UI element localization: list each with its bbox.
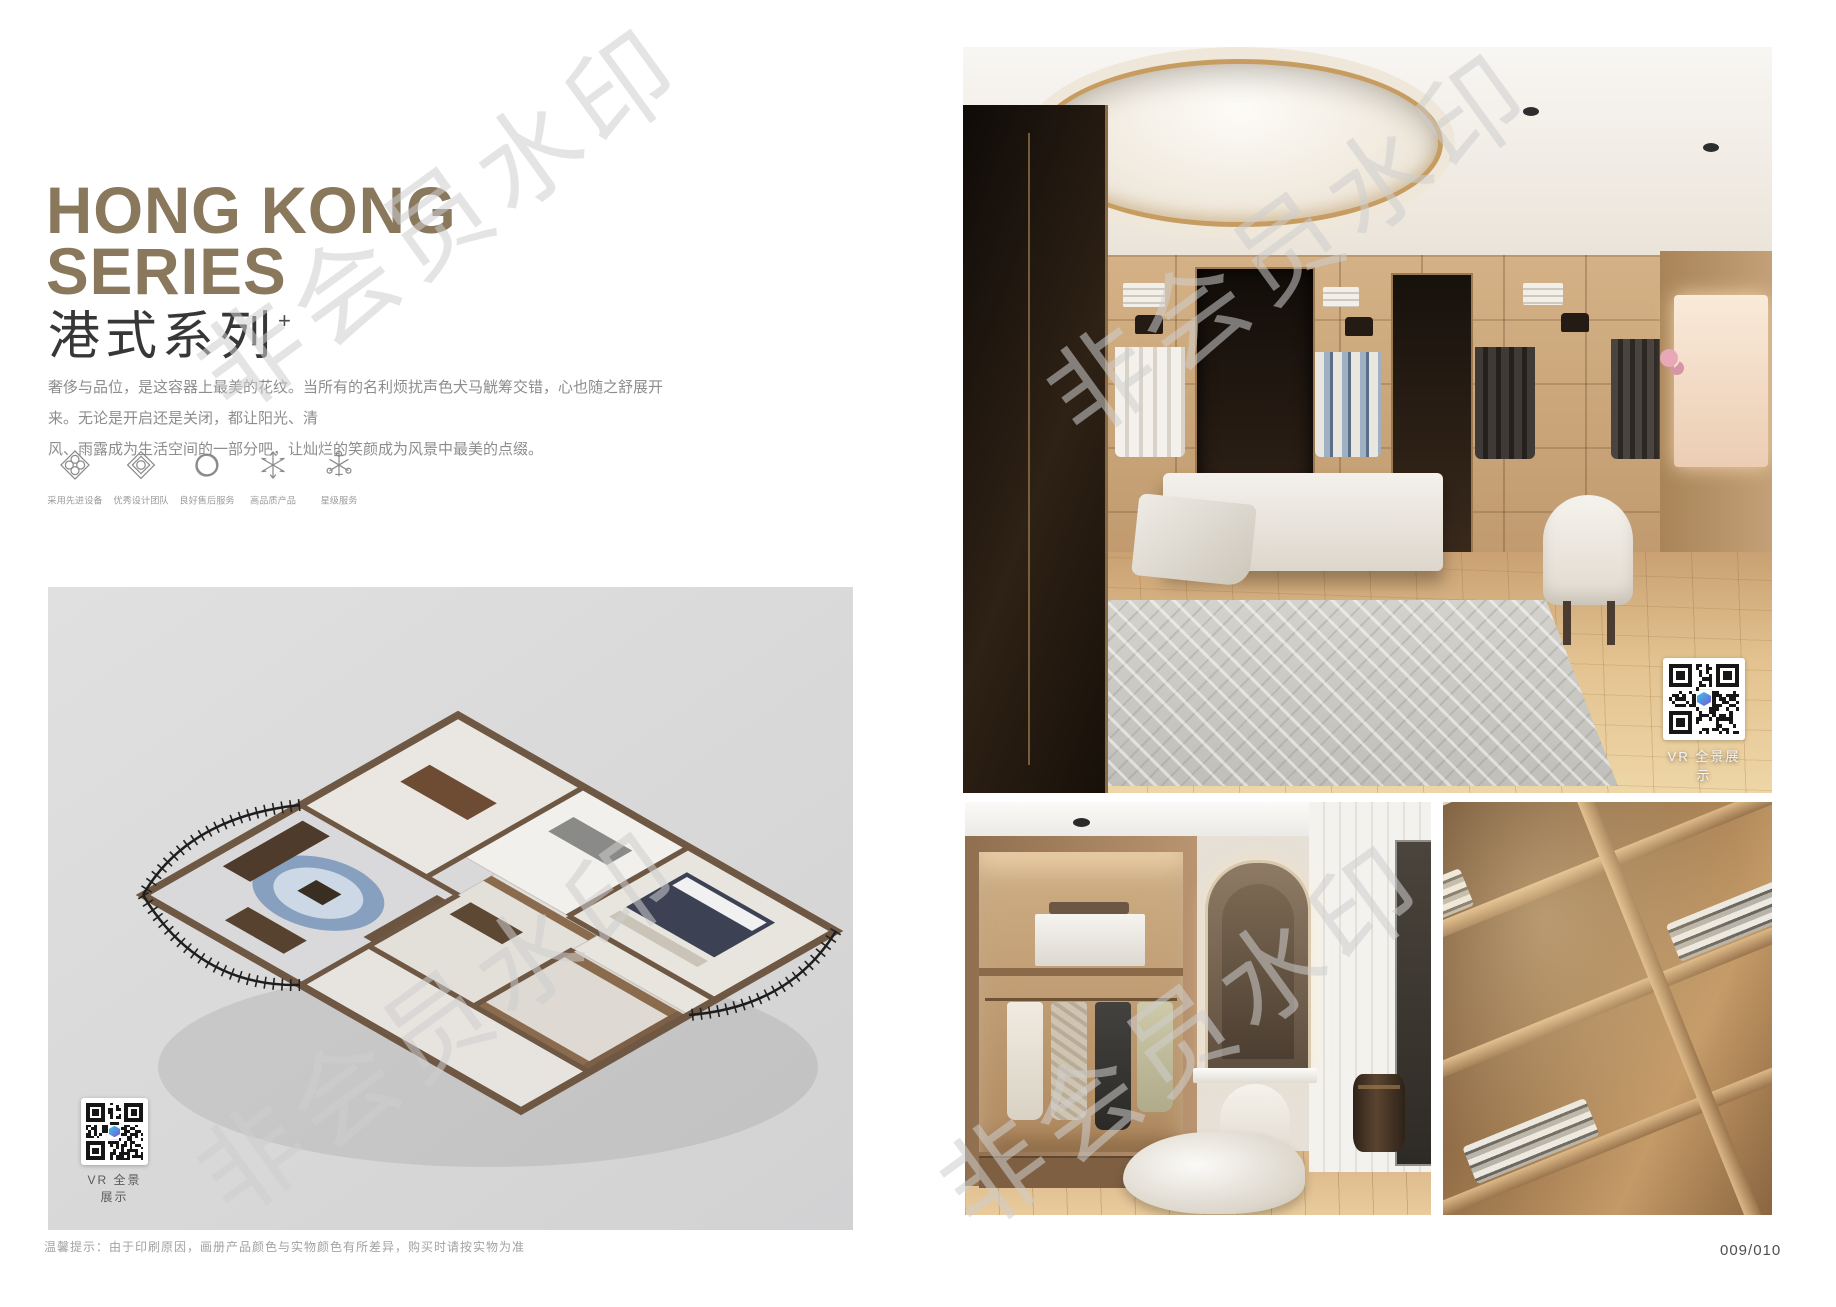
photo-shelf-closeup	[1443, 802, 1772, 1215]
vr-qr-code	[1663, 658, 1745, 740]
qr-pattern	[1669, 664, 1740, 735]
warm-light-glow	[1443, 802, 1772, 1215]
vr-panorama-label: VR 全景展示	[81, 1171, 148, 1205]
hanging-rod	[985, 998, 1177, 1001]
star-service-icon	[322, 448, 356, 482]
hanging-garment	[1007, 1002, 1043, 1120]
vr-qr-code	[81, 1098, 148, 1165]
wardrobe-shelf	[979, 968, 1183, 976]
vanity-mirror	[1674, 295, 1768, 467]
feature-after-sales: 良好售后服务	[174, 448, 240, 507]
hanging-clothes	[1115, 347, 1185, 457]
feature-label: 采用先进设备	[45, 493, 106, 507]
qr-cube-logo	[1695, 690, 1713, 708]
folded-clothes-stack	[1123, 283, 1165, 307]
vanity-counter	[1193, 1068, 1317, 1083]
qr-finder	[86, 1141, 105, 1160]
ring-icon	[190, 448, 224, 482]
hanging-garment	[1137, 1002, 1173, 1112]
daybed	[1163, 473, 1443, 571]
hanging-garment	[1051, 1002, 1087, 1120]
woven-diamond-icon	[124, 448, 158, 482]
catalog-page: 非会员水印 非会员水印 非会员水印 非会员水印 HONG KONG SERIES…	[0, 0, 1836, 1307]
area-rug	[1018, 600, 1618, 786]
feature-advanced-equipment: 采用先进设备	[42, 448, 108, 507]
series-title-en: HONG KONG SERIES	[46, 180, 457, 302]
drum-side-table	[1353, 1074, 1405, 1152]
series-title-cn-text: 港式系列	[48, 308, 276, 366]
snowflake-icon	[256, 448, 290, 482]
footer-note: 温馨提示：由于印刷原因，画册产品颜色与实物颜色有所差异，购买时请按实物为准	[44, 1238, 525, 1255]
hanging-clothes	[1315, 352, 1381, 457]
feature-label: 高品质产品	[243, 493, 304, 507]
qr-finder	[1716, 664, 1739, 687]
flower-vase	[1658, 347, 1680, 369]
page-number: 009/010	[1720, 1242, 1781, 1259]
ceiling-spotlight	[1523, 107, 1539, 116]
photo-vr-badge: VR 全景展示	[1663, 658, 1745, 784]
feature-star-service: 星级服务	[306, 448, 372, 507]
floorplan-vr-badge: VR 全景展示	[81, 1098, 148, 1205]
handbag	[1345, 317, 1373, 336]
open-wardrobe	[965, 836, 1197, 1186]
white-blanket	[1123, 1132, 1305, 1214]
qr-finder	[124, 1103, 143, 1122]
isometric-floorplan-render	[48, 587, 853, 1230]
feature-icons-row: 采用先进设备 优秀设计团队 良好售后服务 高品质产品	[42, 448, 372, 507]
feature-design-team: 优秀设计团队	[108, 448, 174, 507]
qr-finder	[1669, 664, 1692, 687]
storage-box	[1035, 914, 1145, 966]
title-plus-superscript: +	[278, 308, 296, 333]
folded-clothes-stack	[1323, 287, 1359, 307]
feature-label: 良好售后服务	[177, 493, 238, 507]
vr-panorama-label: VR 全景展示	[1663, 746, 1745, 784]
feature-label: 优秀设计团队	[111, 493, 172, 507]
qr-finder	[1669, 711, 1692, 734]
qr-pattern	[86, 1103, 144, 1161]
arched-vanity-mirror	[1205, 860, 1311, 1074]
ceiling-spotlight	[1703, 143, 1719, 152]
qr-finder	[86, 1103, 105, 1122]
flower-diamond-icon	[58, 448, 92, 482]
wardrobe-interior	[979, 852, 1183, 1152]
handbag	[1561, 313, 1589, 332]
hanging-garment	[1095, 1002, 1131, 1130]
feature-label: 星级服务	[309, 493, 370, 507]
downlight	[1073, 818, 1090, 827]
main-photo-walk-in-closet: VR 全景展示	[963, 47, 1772, 793]
folded-clothes-stack	[1523, 283, 1563, 305]
photo-vanity-wardrobe	[965, 802, 1431, 1215]
feature-quality-product: 高品质产品	[240, 448, 306, 507]
series-title-cn: 港式系列+	[48, 294, 294, 369]
handbag	[1135, 315, 1163, 334]
qr-cube-logo	[107, 1124, 122, 1139]
vanity-chair	[1541, 495, 1637, 645]
smoked-glass-wardrobe	[963, 105, 1108, 793]
intro-line-1: 奢侈与品位，是这容器上最美的花纹。当所有的名利烦扰声色犬马觥筹交错，心也随之舒展…	[48, 379, 663, 427]
floorplan-panel: VR 全景展示	[48, 587, 853, 1230]
hanging-clothes	[1475, 347, 1535, 459]
